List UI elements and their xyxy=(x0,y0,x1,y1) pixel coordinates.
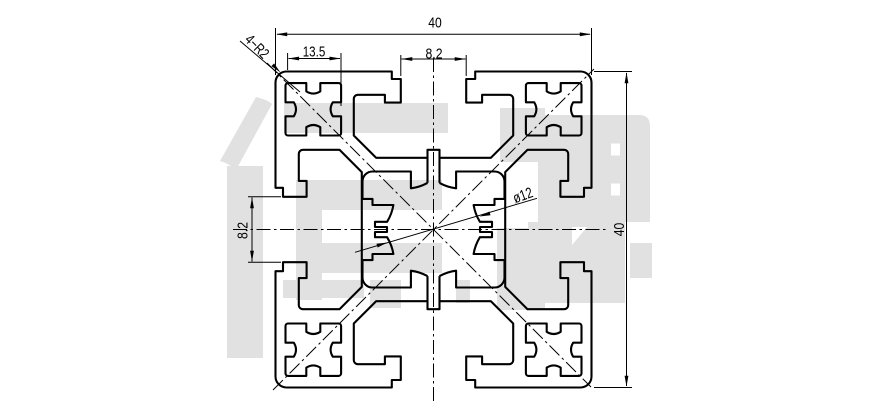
svg-text:8.2: 8.2 xyxy=(426,45,443,62)
svg-text:40: 40 xyxy=(611,223,628,237)
svg-text:8.2: 8.2 xyxy=(235,222,252,239)
svg-text:40: 40 xyxy=(428,15,442,32)
svg-text:13.5: 13.5 xyxy=(303,44,326,61)
